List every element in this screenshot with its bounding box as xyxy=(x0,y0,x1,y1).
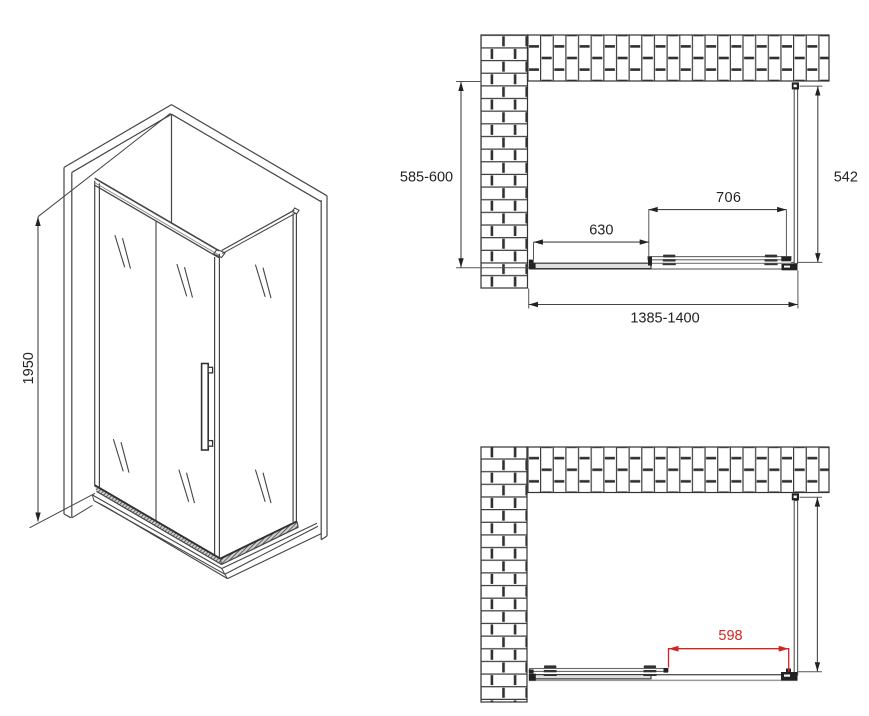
svg-text:598: 598 xyxy=(718,628,742,644)
svg-text:1950: 1950 xyxy=(21,352,37,384)
svg-text:585-600: 585-600 xyxy=(400,170,453,186)
svg-text:706: 706 xyxy=(716,190,741,206)
svg-text:542: 542 xyxy=(834,170,858,186)
svg-text:1385-1400: 1385-1400 xyxy=(630,311,699,327)
svg-text:630: 630 xyxy=(589,222,613,238)
